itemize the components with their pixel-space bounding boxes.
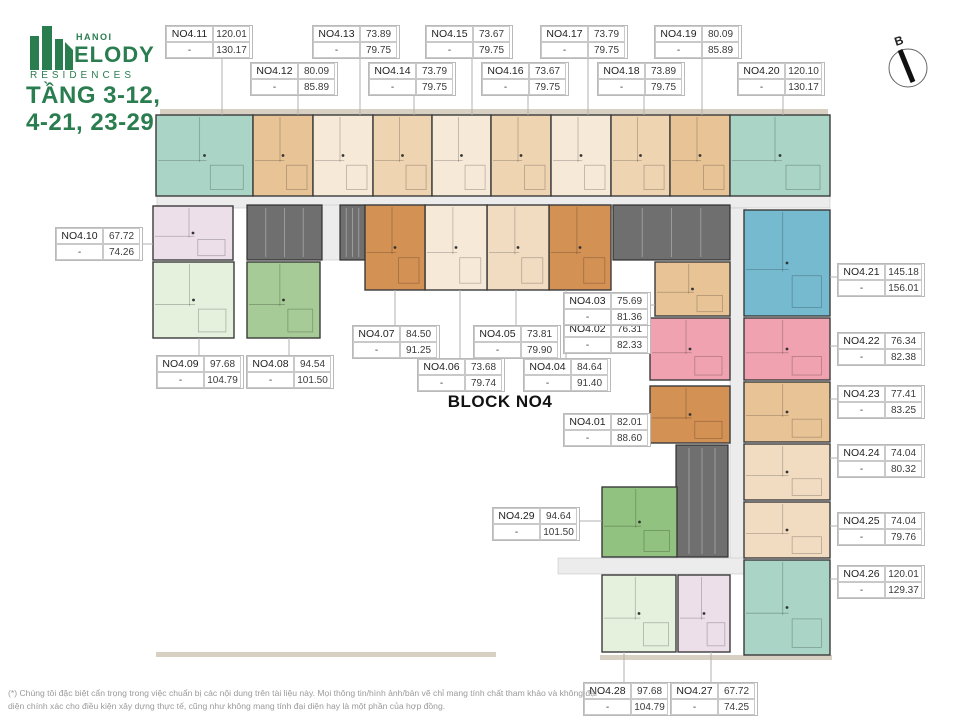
unit-marker-dot bbox=[786, 348, 789, 351]
balcony-trim bbox=[156, 652, 496, 657]
floor-title-line2: 4-21, 23-29 bbox=[26, 109, 160, 136]
unit-marker-dot bbox=[638, 521, 641, 524]
unit-marker-dot bbox=[786, 529, 789, 532]
unit-marker-dot bbox=[689, 348, 692, 351]
unit-marker-dot bbox=[786, 606, 789, 609]
unit-marker-dot bbox=[638, 612, 641, 615]
unit-marker-dot bbox=[517, 246, 520, 249]
unit-marker-dot bbox=[703, 612, 706, 615]
unit-marker-dot bbox=[192, 299, 195, 302]
unit-marker-dot bbox=[282, 299, 285, 302]
logo-melody-text: ELODY bbox=[74, 42, 155, 67]
logo-residences-text: RESIDENCES bbox=[30, 70, 135, 80]
unit-marker-dot bbox=[192, 232, 195, 235]
unit-marker-dot bbox=[691, 288, 694, 291]
floor-title-line1: TẦNG 3-12, bbox=[26, 82, 160, 109]
block-title: BLOCK NO4 bbox=[420, 392, 580, 412]
unit-marker-dot bbox=[460, 154, 463, 157]
balcony-trim bbox=[160, 109, 828, 115]
unit-marker-dot bbox=[639, 154, 642, 157]
balcony-trim bbox=[600, 655, 832, 660]
compass-north-label: B bbox=[893, 33, 906, 49]
unit-marker-dot bbox=[579, 246, 582, 249]
unit-marker-dot bbox=[455, 246, 458, 249]
floor-title: TẦNG 3-12, 4-21, 23-29 bbox=[26, 82, 160, 136]
unit-marker-dot bbox=[779, 154, 782, 157]
compass-needle bbox=[900, 50, 913, 82]
unit-marker-dot bbox=[282, 154, 285, 157]
logo-hanoi-text: HANOI bbox=[76, 32, 113, 42]
unit-marker-dot bbox=[520, 154, 523, 157]
unit-marker-dot bbox=[786, 262, 789, 265]
floorplan-page: B NO4.0182.01-88.60NO4.0276.31-82.33NO4.… bbox=[0, 0, 960, 722]
unit-marker-dot bbox=[786, 411, 789, 414]
footer-disclaimer: (*) Chúng tôi đặc biệt cẩn trọng trong v… bbox=[8, 687, 608, 713]
corridor bbox=[558, 558, 746, 574]
unit-marker-dot bbox=[203, 154, 206, 157]
unit-marker-dot bbox=[786, 471, 789, 474]
unit-marker-dot bbox=[394, 246, 397, 249]
unit-marker-dot bbox=[580, 154, 583, 157]
hanoi-melody-logo: HANOI ELODY RESIDENCES bbox=[26, 12, 166, 85]
unit-marker-dot bbox=[689, 413, 692, 416]
unit-marker-dot bbox=[699, 154, 702, 157]
unit-marker-dot bbox=[342, 154, 345, 157]
unit-marker-dot bbox=[401, 154, 404, 157]
corridor bbox=[322, 205, 340, 260]
logo-buildings-icon: HANOI ELODY RESIDENCES bbox=[26, 12, 166, 80]
